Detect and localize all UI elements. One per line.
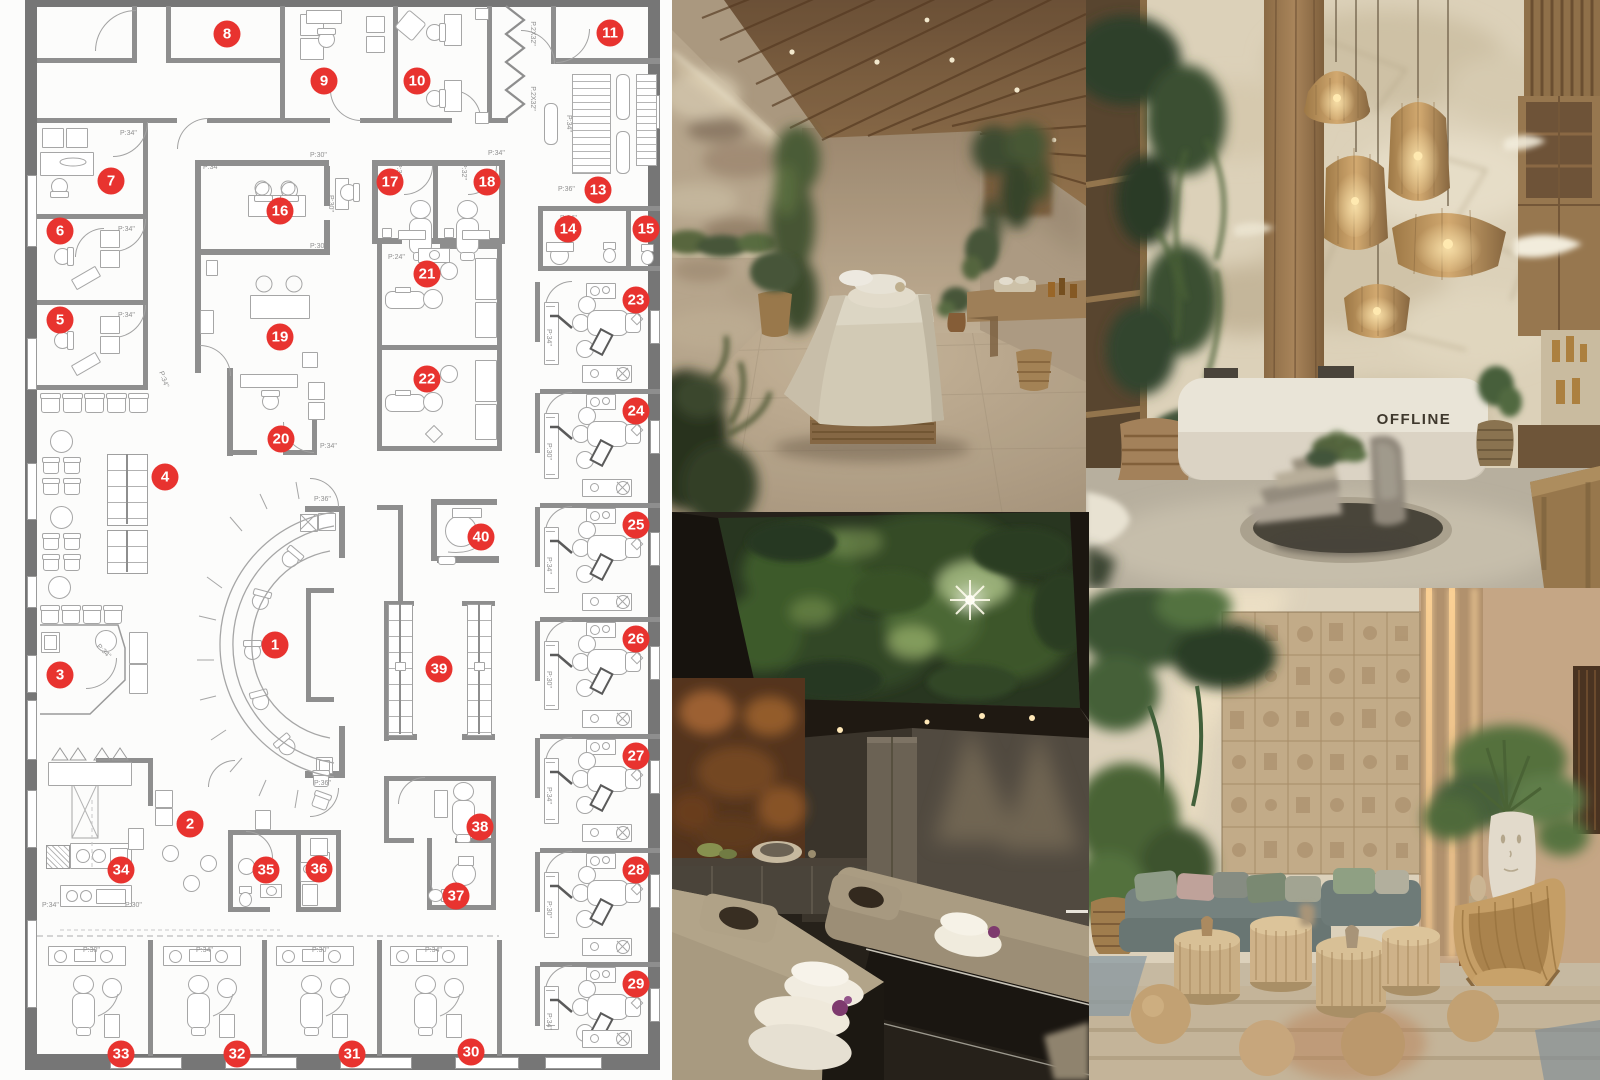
svg-text:OFFLINE: OFFLINE — [1377, 411, 1452, 428]
